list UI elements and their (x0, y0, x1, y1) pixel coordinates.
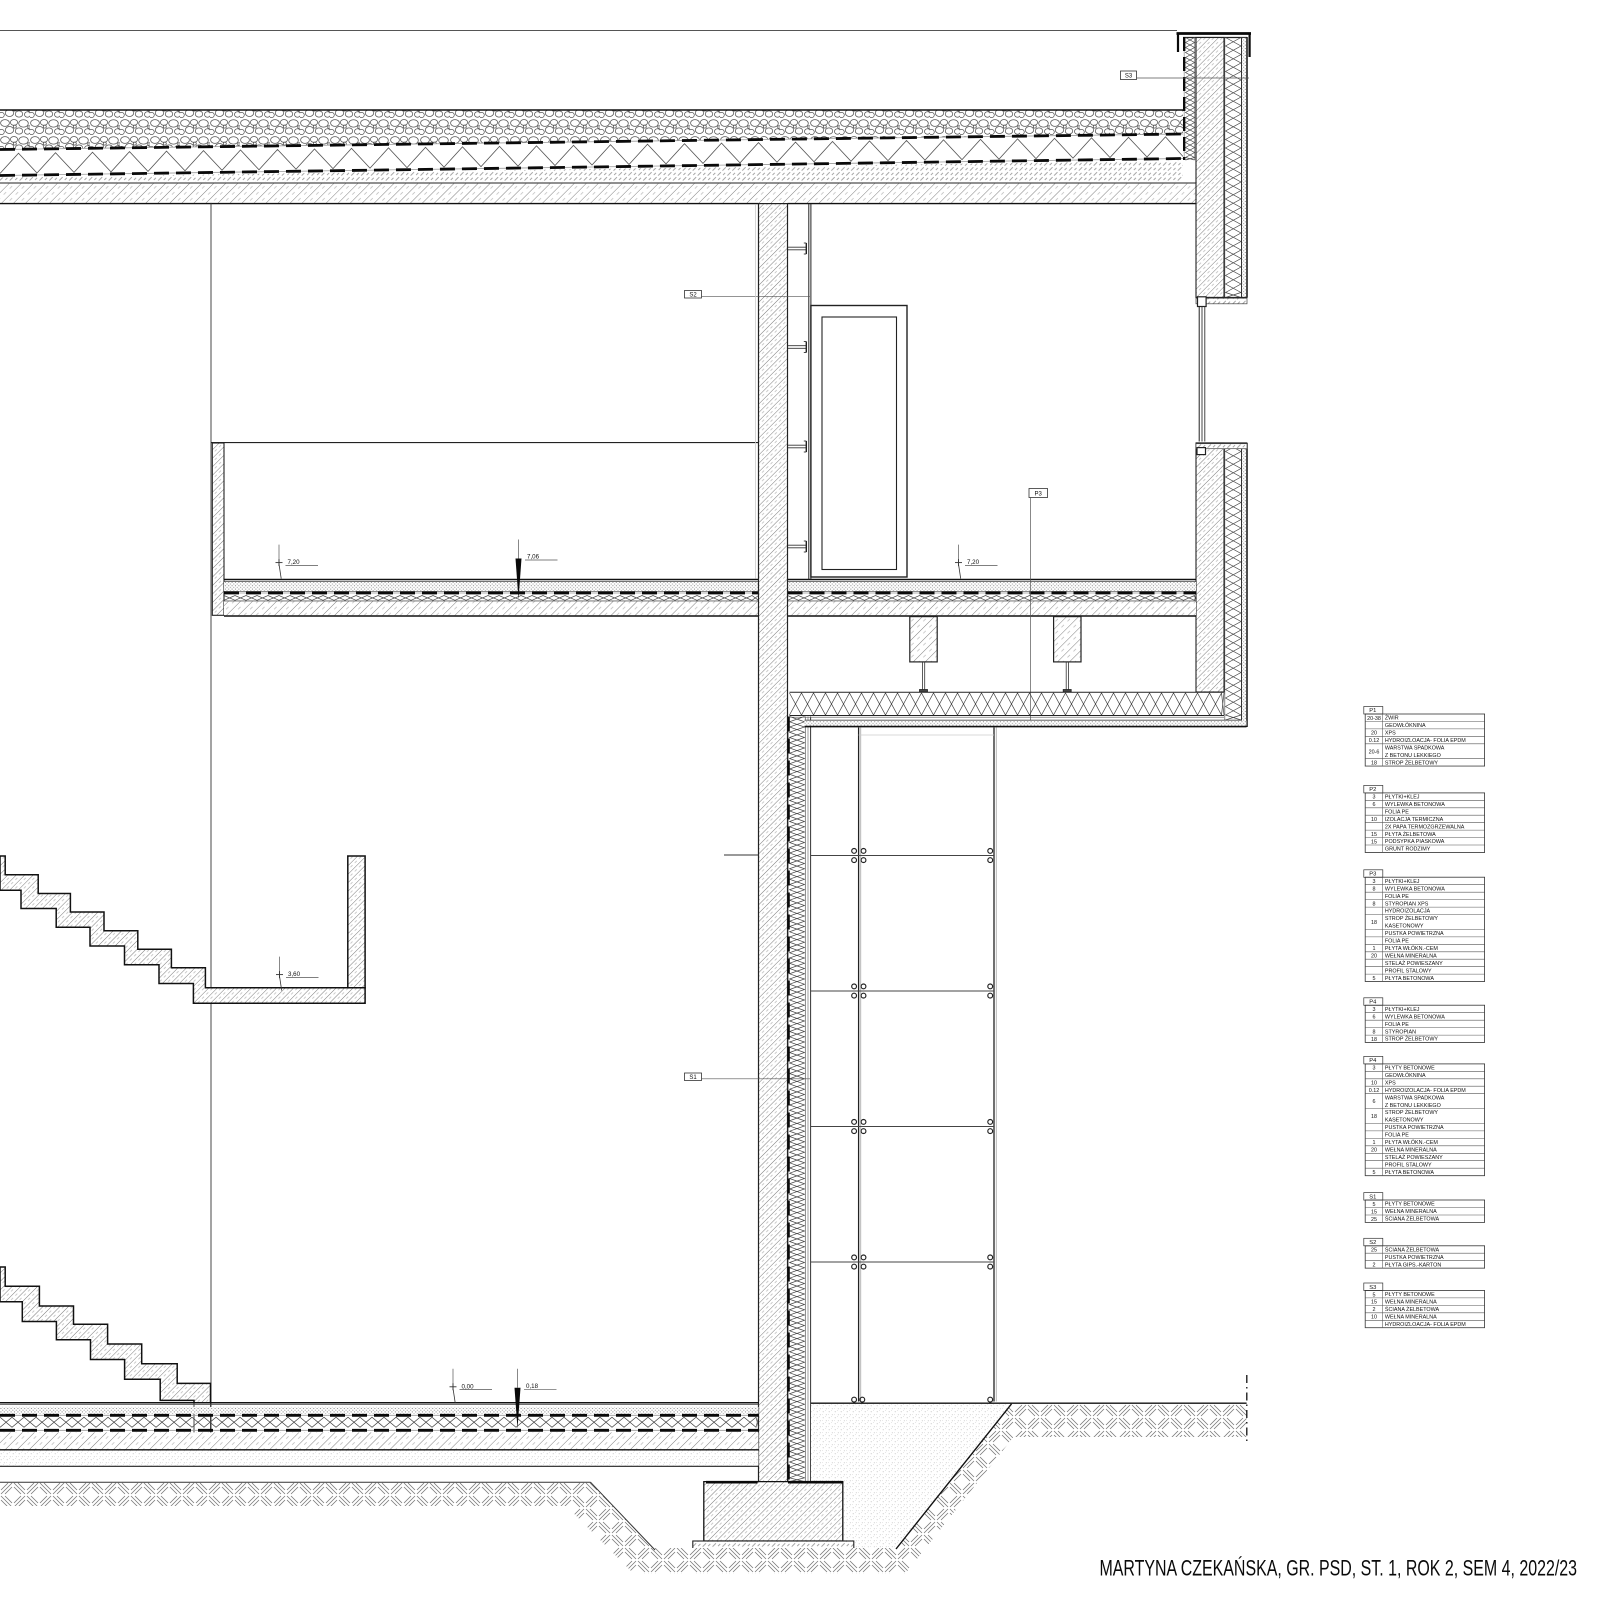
svg-text:STROP ŻELBETOWY: STROP ŻELBETOWY (1385, 915, 1439, 922)
svg-text:P2: P2 (1369, 787, 1376, 793)
svg-text:PŁYTA BETONOWA: PŁYTA BETONOWA (1385, 976, 1434, 982)
svg-text:S2: S2 (689, 292, 697, 298)
svg-text:25: 25 (1371, 1217, 1377, 1223)
svg-text:2: 2 (1373, 1263, 1376, 1269)
svg-text:PŁYTKI+KLEJ: PŁYTKI+KLEJ (1385, 879, 1420, 885)
svg-text:WEŁNA MINERALNA: WEŁNA MINERALNA (1385, 1148, 1437, 1154)
svg-text:MARTYNA CZEKAŃSKA, GR. PSD, ST: MARTYNA CZEKAŃSKA, GR. PSD, ST. 1, ROK 2… (1100, 1556, 1578, 1581)
svg-text:STYROPIAN: STYROPIAN (1385, 1029, 1416, 1035)
svg-text:KASETONOWY: KASETONOWY (1385, 924, 1424, 930)
svg-text:PŁYTKI+KLEJ: PŁYTKI+KLEJ (1385, 795, 1420, 801)
svg-text:S2: S2 (1369, 1240, 1376, 1246)
svg-text:WEŁNA MINERALNA: WEŁNA MINERALNA (1385, 953, 1437, 959)
svg-text:0,18: 0,18 (526, 1383, 539, 1390)
svg-text:3,60: 3,60 (288, 971, 301, 978)
svg-text:18: 18 (1371, 761, 1377, 767)
svg-text:5: 5 (1373, 1292, 1376, 1298)
svg-text:15: 15 (1371, 832, 1377, 838)
svg-text:PŁYTA WŁÓKN.-CEM: PŁYTA WŁÓKN.-CEM (1385, 1139, 1438, 1146)
svg-text:18: 18 (1371, 1037, 1377, 1043)
svg-text:FOLIA PE: FOLIA PE (1385, 1133, 1409, 1139)
svg-text:STYROPIAN XPS: STYROPIAN XPS (1385, 901, 1429, 907)
svg-text:ŻWIR: ŻWIR (1385, 715, 1399, 722)
svg-text:6: 6 (1373, 1099, 1376, 1105)
svg-text:GRUNT RODZIMY: GRUNT RODZIMY (1385, 847, 1431, 853)
svg-text:WYLEWKA BETONOWA: WYLEWKA BETONOWA (1385, 1014, 1445, 1020)
svg-text:PUSTKA POWIETRZNA: PUSTKA POWIETRZNA (1385, 1125, 1444, 1131)
svg-text:STELAŻ POWIESZANY: STELAŻ POWIESZANY (1385, 1154, 1443, 1161)
svg-text:IZOLACJA TERMICZNA: IZOLACJA TERMICZNA (1385, 817, 1444, 823)
svg-text:GEOWŁÓKNINA: GEOWŁÓKNINA (1385, 722, 1426, 729)
svg-text:PŁYTY BETONOWE: PŁYTY BETONOWE (1385, 1292, 1435, 1298)
svg-text:0.12: 0.12 (1369, 1088, 1380, 1094)
svg-text:HYDROIZLOACJA- FOLIA EPDM: HYDROIZLOACJA- FOLIA EPDM (1385, 1322, 1466, 1328)
svg-text:ŚCIANA ŻELBETOWA: ŚCIANA ŻELBETOWA (1385, 1305, 1440, 1313)
svg-text:15: 15 (1371, 1300, 1377, 1306)
svg-text:7,20: 7,20 (967, 559, 980, 566)
svg-text:WARSTWA SPADKOWA: WARSTWA SPADKOWA (1385, 1095, 1445, 1101)
svg-text:PŁYTA WŁÓKN.-CEM: PŁYTA WŁÓKN.-CEM (1385, 945, 1438, 952)
svg-text:3: 3 (1373, 1007, 1376, 1013)
svg-text:GEOWŁÓKNINA: GEOWŁÓKNINA (1385, 1072, 1426, 1079)
svg-text:WEŁNA MINERALNA: WEŁNA MINERALNA (1385, 1209, 1437, 1215)
svg-text:18: 18 (1371, 1114, 1377, 1120)
svg-text:8: 8 (1373, 887, 1376, 893)
svg-text:8: 8 (1373, 901, 1376, 907)
svg-text:PODSYPKA PIASKOWA: PODSYPKA PIASKOWA (1385, 839, 1445, 845)
svg-text:FOLIA PE: FOLIA PE (1385, 894, 1409, 900)
svg-text:7,06: 7,06 (527, 554, 540, 561)
svg-text:20-6: 20-6 (1369, 749, 1380, 755)
svg-text:18: 18 (1371, 920, 1377, 926)
svg-text:HYDROIZOLACJA- FOLIA EPDM: HYDROIZOLACJA- FOLIA EPDM (1385, 1088, 1466, 1094)
svg-text:8: 8 (1373, 1029, 1376, 1035)
svg-text:15: 15 (1371, 1209, 1377, 1215)
svg-text:7,20: 7,20 (288, 559, 301, 566)
svg-text:S3: S3 (1369, 1285, 1376, 1291)
svg-text:PŁYTY BETONOWE: PŁYTY BETONOWE (1385, 1066, 1435, 1072)
svg-text:P3: P3 (1035, 492, 1043, 498)
svg-text:S1: S1 (1369, 1194, 1376, 1200)
svg-text:20: 20 (1371, 1148, 1377, 1154)
svg-text:XPS: XPS (1385, 731, 1396, 737)
svg-text:WYLEWKA BETONOWA: WYLEWKA BETONOWA (1385, 802, 1445, 808)
svg-text:15: 15 (1371, 839, 1377, 845)
svg-text:6: 6 (1373, 1015, 1376, 1021)
svg-text:P4: P4 (1369, 1000, 1377, 1006)
svg-text:STROP ŻELBETOWY: STROP ŻELBETOWY (1385, 759, 1439, 766)
svg-text:STROP ŻELBETOWY: STROP ŻELBETOWY (1385, 1036, 1439, 1043)
svg-text:FOLIA PE: FOLIA PE (1385, 939, 1409, 945)
svg-text:10: 10 (1371, 1315, 1377, 1321)
svg-text:10: 10 (1371, 817, 1377, 823)
svg-text:PŁYTY BETONOWE: PŁYTY BETONOWE (1385, 1202, 1435, 1208)
svg-text:STROP ŻELBETOWY: STROP ŻELBETOWY (1385, 1109, 1439, 1116)
svg-text:2X PAPA TERMOZGRZEWALNA: 2X PAPA TERMOZGRZEWALNA (1385, 824, 1465, 830)
svg-text:S3: S3 (1125, 74, 1133, 80)
svg-text:2: 2 (1373, 1307, 1376, 1313)
svg-text:3: 3 (1373, 1066, 1376, 1072)
svg-text:20: 20 (1371, 954, 1377, 960)
svg-text:6: 6 (1373, 802, 1376, 808)
svg-text:KASETONOWY: KASETONOWY (1385, 1118, 1424, 1124)
svg-text:Z BETONU LEKKIEGO: Z BETONU LEKKIEGO (1385, 753, 1441, 759)
svg-text:25: 25 (1371, 1248, 1377, 1254)
svg-text:P1: P1 (1369, 708, 1376, 714)
svg-text:PŁYTA BETONOWA: PŁYTA BETONOWA (1385, 1170, 1434, 1176)
svg-text:HYDROIZLOACJA- FOLIA EPDM: HYDROIZLOACJA- FOLIA EPDM (1385, 738, 1466, 744)
svg-text:0.12: 0.12 (1369, 738, 1380, 744)
svg-text:STELAŻ POWIESZANY: STELAŻ POWIESZANY (1385, 960, 1443, 967)
svg-text:20: 20 (1371, 731, 1377, 737)
svg-text:HYDROIZOLACJA: HYDROIZOLACJA (1385, 909, 1431, 915)
svg-text:PROFIL STALOWY: PROFIL STALOWY (1385, 1162, 1432, 1168)
svg-text:3: 3 (1373, 795, 1376, 801)
svg-text:1: 1 (1373, 946, 1376, 952)
svg-text:S1: S1 (689, 1075, 697, 1081)
svg-text:10: 10 (1371, 1081, 1377, 1087)
svg-text:WARSTWA SPADKOWA: WARSTWA SPADKOWA (1385, 745, 1445, 751)
svg-text:PŁYTA GIPS.-KARTON: PŁYTA GIPS.-KARTON (1385, 1262, 1441, 1268)
svg-text:3: 3 (1373, 879, 1376, 885)
svg-text:WYLEWKA BETONOWA: WYLEWKA BETONOWA (1385, 886, 1445, 892)
svg-text:1: 1 (1373, 1140, 1376, 1146)
svg-text:XPS: XPS (1385, 1080, 1396, 1086)
svg-text:PROFIL STALOWY: PROFIL STALOWY (1385, 968, 1432, 974)
svg-text:ŚCIANA ŻELBETOWA: ŚCIANA ŻELBETOWA (1385, 1215, 1440, 1223)
svg-text:PŁYTKI+KLEJ: PŁYTKI+KLEJ (1385, 1007, 1420, 1013)
svg-text:Z BETONU LEKKIEGO: Z BETONU LEKKIEGO (1385, 1103, 1441, 1109)
svg-text:5: 5 (1373, 1170, 1376, 1176)
svg-text:20-38: 20-38 (1367, 716, 1381, 722)
svg-text:ŚCIANA ŻELBETOWA: ŚCIANA ŻELBETOWA (1385, 1245, 1440, 1253)
svg-text:P4: P4 (1369, 1058, 1377, 1064)
svg-text:5: 5 (1373, 976, 1376, 982)
svg-text:WEŁNA MINERALNA: WEŁNA MINERALNA (1385, 1315, 1437, 1321)
svg-text:PUSTKA POWIETRZNA: PUSTKA POWIETRZNA (1385, 931, 1444, 937)
svg-text:FOLIA PE: FOLIA PE (1385, 809, 1409, 815)
svg-text:P3: P3 (1369, 872, 1376, 878)
svg-text:WEŁNA MINERALNA: WEŁNA MINERALNA (1385, 1300, 1437, 1306)
svg-text:FOLIA PE: FOLIA PE (1385, 1022, 1409, 1028)
svg-text:PUSTKA POWIETRZNA: PUSTKA POWIETRZNA (1385, 1255, 1444, 1261)
svg-text:PŁYTA ŻELBETOWA: PŁYTA ŻELBETOWA (1385, 831, 1436, 838)
svg-text:5: 5 (1373, 1202, 1376, 1208)
